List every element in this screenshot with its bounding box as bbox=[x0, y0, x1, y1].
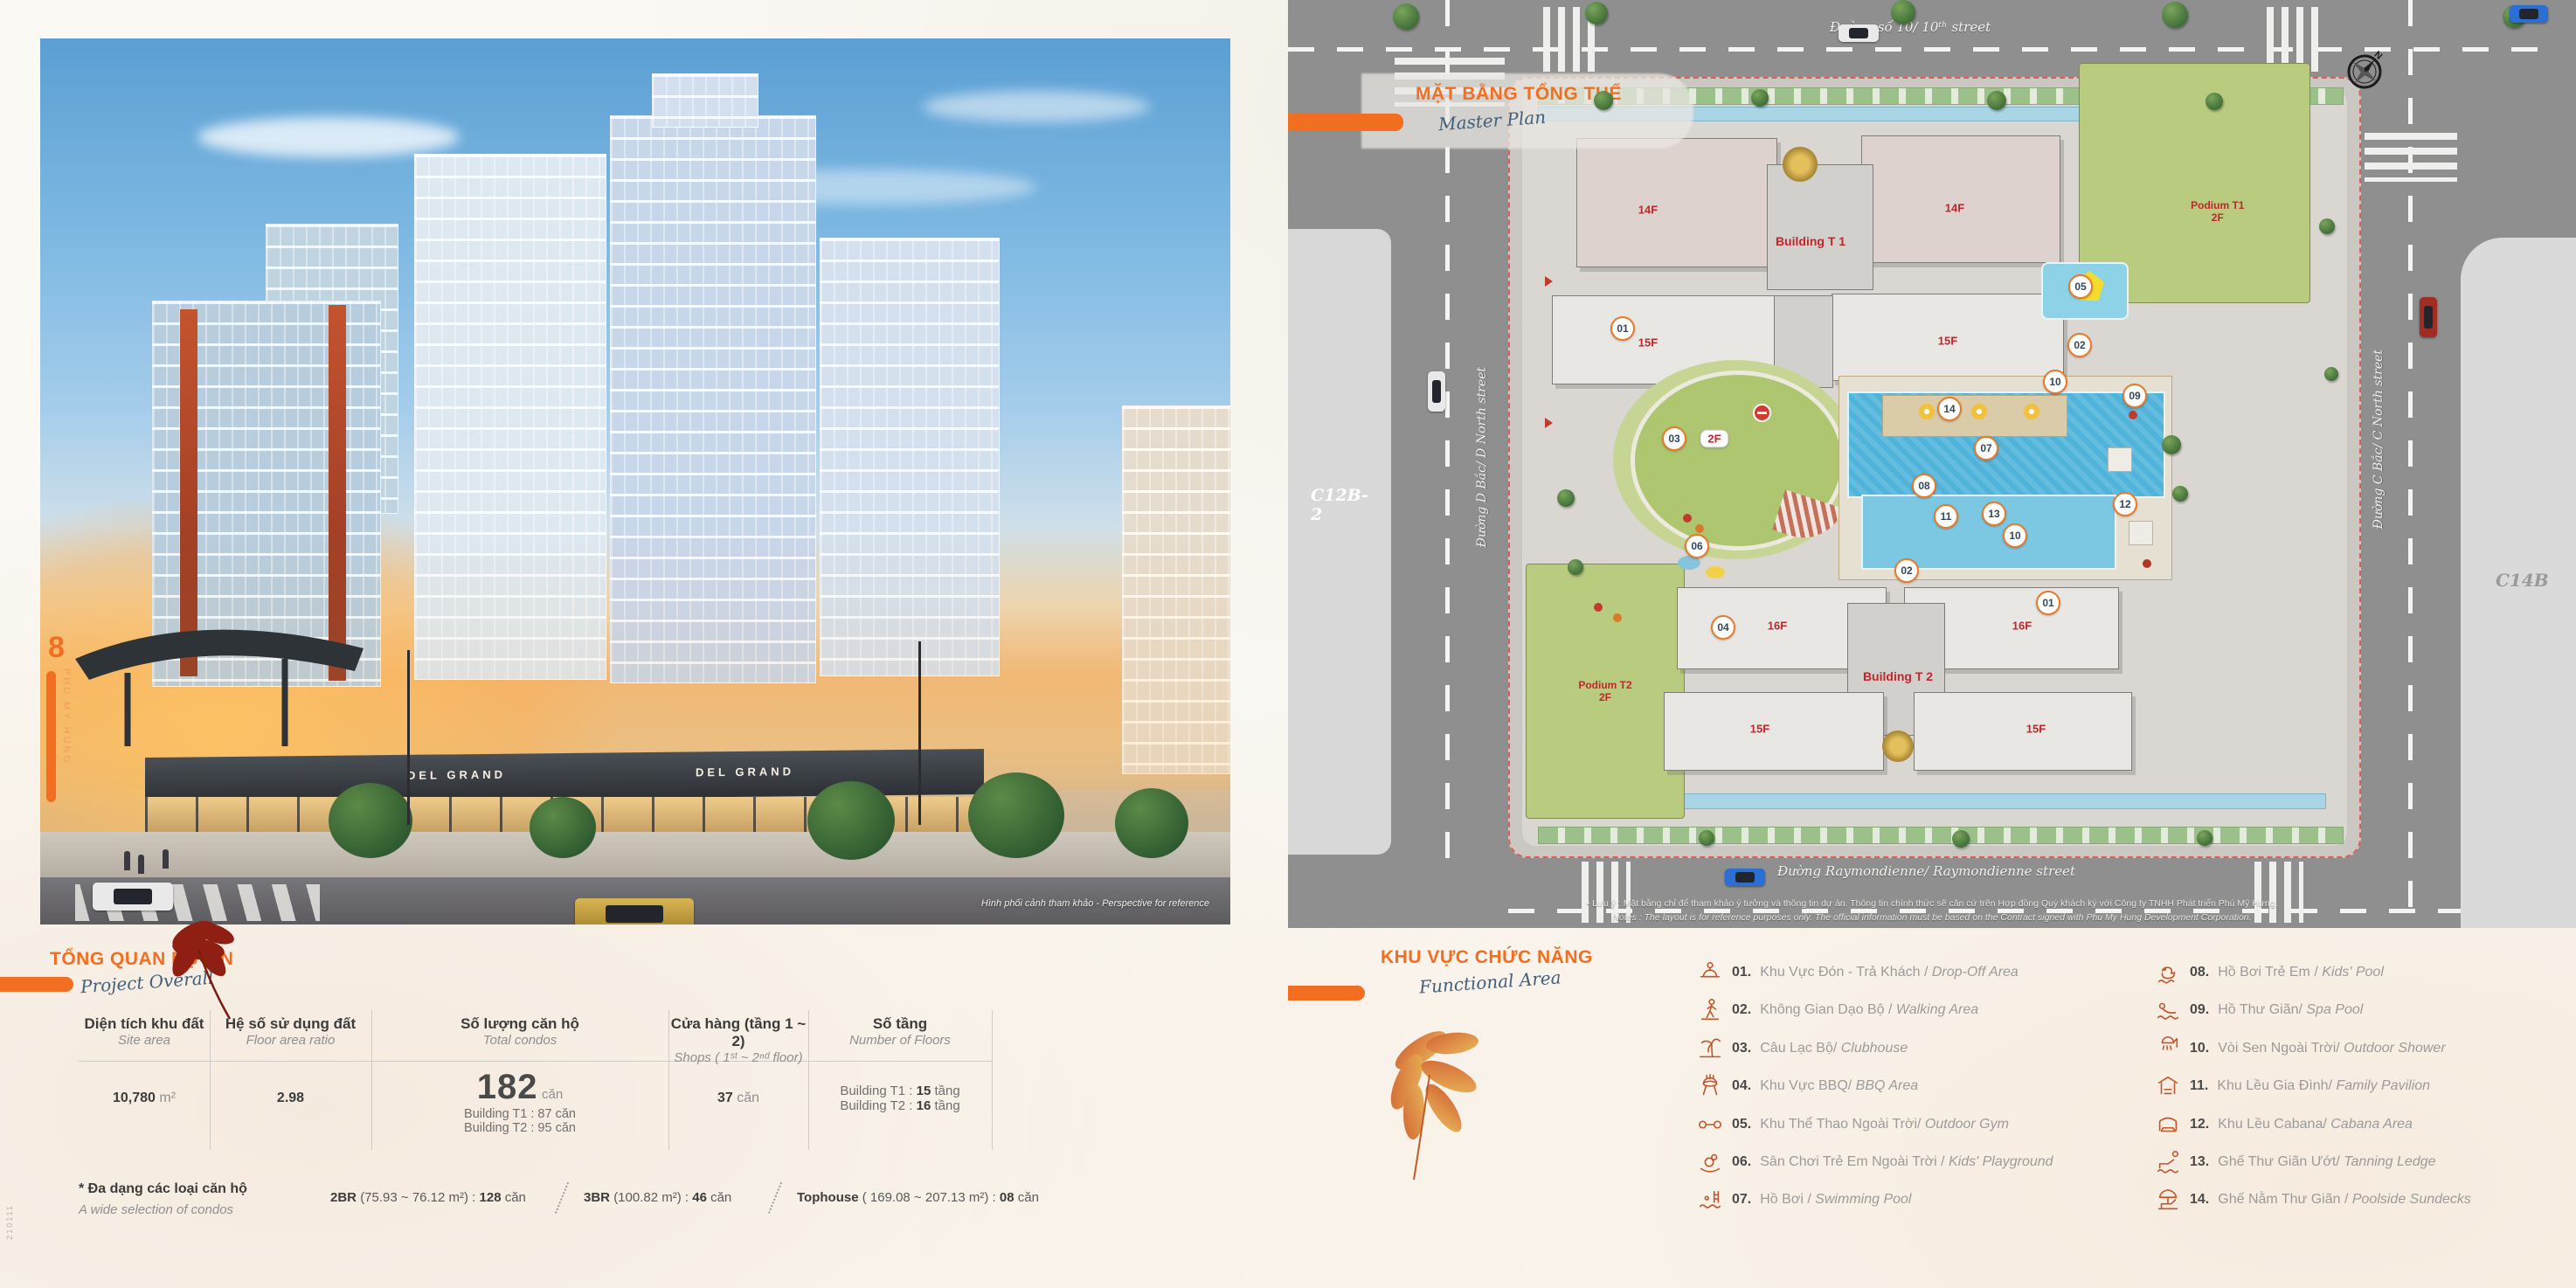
map-marker-13: 13 bbox=[1982, 502, 2006, 526]
map-marker-02: 02 bbox=[1894, 558, 1919, 583]
car-icon bbox=[1839, 24, 1879, 42]
playground-blob bbox=[1706, 566, 1725, 578]
legend-number: 14. bbox=[2190, 1192, 2209, 1208]
floors-cell: Building T1 : 15 tầng Building T2 : 16 t… bbox=[808, 1084, 992, 1113]
t2-wing-15f-right bbox=[1914, 692, 2132, 771]
map-title-pill bbox=[1288, 114, 1403, 131]
map-marker-01: 01 bbox=[1610, 316, 1635, 341]
pedestrian bbox=[138, 855, 144, 874]
brochure-spread: DEL GRAND DEL GRAND Hình phối cảnh tham … bbox=[0, 0, 2576, 1288]
site-area-value: 10,780 m² bbox=[79, 1091, 210, 1106]
col-header: Hệ số sử dụng đấtFloor area ratio bbox=[210, 1015, 371, 1048]
legend-item-02: 02.Không Gian Dạo Bộ / Walking Area bbox=[1697, 995, 1978, 1025]
block-c12b2: C12B-2 bbox=[1288, 229, 1391, 855]
legend-item-13: 13.Ghế Thư Giãn Ướt/ Tanning Ledge bbox=[2155, 1147, 2436, 1177]
spa-pool-icon bbox=[2155, 997, 2181, 1023]
photo-caption: Hình phối cảnh tham khảo - Perspective f… bbox=[981, 898, 1209, 909]
tree-icon bbox=[2197, 830, 2212, 846]
legend-number: 12. bbox=[2190, 1117, 2209, 1132]
floor-count-label: 14F bbox=[1638, 204, 1658, 217]
legend-item-10: 10.Vòi Sen Ngoài Trời/ Outdoor Shower bbox=[2155, 1034, 2446, 1063]
floor-count-label: 16F bbox=[1768, 620, 1787, 633]
entrance-canopy bbox=[66, 598, 381, 755]
legend-subtitle: Functional Area bbox=[1418, 966, 1562, 997]
car-icon bbox=[1725, 869, 1765, 886]
tree-icon bbox=[530, 797, 596, 858]
legend-item-03: 03.Câu Lạc Bộ/ Clubhouse bbox=[1697, 1034, 1908, 1063]
legend-pill bbox=[1288, 986, 1365, 1001]
legend-number: 09. bbox=[2190, 1002, 2209, 1018]
pool-icon bbox=[1697, 1187, 1723, 1213]
floor-count-label: 15F bbox=[2026, 723, 2046, 736]
block-c12b2-label: C12B-2 bbox=[1311, 486, 1368, 524]
map-marker-11: 11 bbox=[1934, 504, 1958, 529]
street-left: Đường D Bắc/ D North street bbox=[1475, 367, 1489, 547]
streetlight bbox=[918, 641, 921, 825]
map-marker-08: 08 bbox=[1912, 474, 1936, 498]
col-header: Số lượng căn hộTotal condos bbox=[371, 1015, 668, 1048]
crosswalk bbox=[2365, 133, 2457, 182]
master-plan-map: C12B-2 C14B Podium T12F Podium T22F bbox=[1288, 0, 2576, 928]
legend-label: Hồ Bơi Trẻ Em / Kids' Pool bbox=[2218, 965, 2384, 980]
car-icon bbox=[93, 883, 173, 911]
map-marker-10: 10 bbox=[2043, 370, 2067, 394]
legend-label: Vòi Sen Ngoài Trời/ Outdoor Shower bbox=[2218, 1041, 2445, 1056]
shrub-icon bbox=[1683, 514, 1692, 523]
brand-vertical: PHU MY HUNG bbox=[61, 668, 72, 765]
t1-wing-14f-left bbox=[1576, 138, 1777, 267]
legend-label: Hồ Thư Giãn/ Spa Pool bbox=[2218, 1002, 2363, 1018]
shrub-icon bbox=[2143, 559, 2151, 568]
tree-icon bbox=[2206, 93, 2223, 110]
delgrand-sign: DEL GRAND bbox=[407, 768, 506, 782]
legend-label: Khu Vực BBQ/ BBQ Area bbox=[1760, 1078, 1918, 1094]
legend-item-05: 05.Khu Thể Thao Ngoài Trời/ Outdoor Gym bbox=[1697, 1110, 2009, 1139]
t1-wing-14f-right bbox=[1861, 135, 2060, 263]
car-icon bbox=[2420, 297, 2437, 337]
map-marker-05: 05 bbox=[2068, 274, 2093, 299]
map-marker-07: 07 bbox=[1974, 436, 1998, 460]
col-header: Diện tích khu đấtSite area bbox=[79, 1015, 210, 1048]
map-note-en: Notes : The layout is for reference purp… bbox=[1320, 912, 2544, 923]
legend-item-07: 07.Hồ Bơi / Swimming Pool bbox=[1697, 1185, 1911, 1215]
cabana bbox=[2108, 447, 2132, 472]
legend-title: KHU VỰC CHỨC NĂNG bbox=[1381, 947, 1593, 968]
condo-type-3br: 3BR (100.82 m²) : 46 căn bbox=[584, 1190, 731, 1205]
shrub-icon bbox=[1594, 603, 1603, 612]
tree-icon bbox=[2162, 435, 2181, 454]
t1-core bbox=[1767, 164, 1873, 290]
tree-icon bbox=[1594, 91, 1613, 110]
legend-item-06: 06.Sân Chơi Trẻ Em Ngoài Trời / Kids' Pl… bbox=[1697, 1147, 2053, 1177]
shower-icon bbox=[2155, 1035, 2181, 1062]
tree-icon bbox=[2324, 367, 2338, 381]
map-title: MẶT BẰNG TỔNG THỂ bbox=[1416, 84, 1622, 105]
overview-pill bbox=[0, 977, 73, 992]
map-marker-12: 12 bbox=[2113, 492, 2137, 516]
tree-icon bbox=[2162, 2, 2188, 28]
legend-label: Hồ Bơi / Swimming Pool bbox=[1760, 1192, 1911, 1208]
condo-type-tophouse: Tophouse ( 169.08 ~ 207.13 m²) : 08 căn bbox=[797, 1190, 1039, 1205]
building-t2-label: Building T 2 bbox=[1863, 669, 1933, 683]
streetlight bbox=[407, 650, 410, 825]
legend-item-09: 09.Hồ Thư Giãn/ Spa Pool bbox=[2155, 995, 2363, 1025]
legend-item-12: 12.Khu Lều Cabana/ Cabana Area bbox=[2155, 1110, 2413, 1139]
legend-label: Câu Lạc Bộ/ Clubhouse bbox=[1760, 1041, 1908, 1056]
legend-number: 07. bbox=[1732, 1192, 1751, 1208]
block-c14b: C14B bbox=[2461, 238, 2576, 928]
page-bar bbox=[46, 671, 56, 802]
legend-number: 10. bbox=[2190, 1041, 2209, 1056]
shrub-icon bbox=[1613, 613, 1622, 622]
crosswalk bbox=[2267, 7, 2323, 72]
condos-cell: 182 căn Building T1 : 87 căn Building T2… bbox=[371, 1068, 668, 1135]
shrub-icon bbox=[1695, 524, 1704, 533]
tree-icon bbox=[2172, 486, 2188, 502]
tree-icon bbox=[1557, 489, 1575, 507]
floor-count-label: 15F bbox=[1638, 336, 1658, 350]
pedestrian bbox=[163, 849, 169, 869]
floor-count-label: 15F bbox=[1750, 723, 1769, 736]
legend-label: Không Gian Dạo Bộ / Walking Area bbox=[1760, 1002, 1978, 1018]
walking-icon bbox=[1697, 997, 1723, 1023]
sundeck-icon bbox=[2155, 1187, 2181, 1213]
tree-icon bbox=[1891, 0, 1915, 24]
legend-number: 02. bbox=[1732, 1002, 1751, 1018]
legend-label: Ghế Nằm Thư Giãn / Poolside Sundecks bbox=[2218, 1192, 2471, 1208]
map-marker-04: 04 bbox=[1711, 615, 1735, 640]
floor-count-label: 16F bbox=[2012, 620, 2032, 633]
tree-icon bbox=[1987, 91, 2006, 110]
tree-icon bbox=[1952, 830, 1970, 848]
legend-label: Khu Lều Gia Đình/ Family Pavilion bbox=[2217, 1078, 2430, 1094]
legend-number: 01. bbox=[1732, 965, 1751, 980]
tree-icon bbox=[807, 781, 895, 860]
compass-icon: N bbox=[2342, 49, 2387, 94]
tree-icon bbox=[2319, 218, 2335, 234]
tanning-icon bbox=[2155, 1149, 2181, 1175]
playground-icon bbox=[1697, 1149, 1723, 1175]
street-right: Đường C Bắc/ C North street bbox=[2372, 350, 2386, 529]
tree-icon bbox=[1585, 2, 1608, 24]
cabana-icon bbox=[2155, 1111, 2181, 1138]
tree-icon bbox=[1393, 3, 1419, 30]
clubhouse-icon bbox=[1697, 1035, 1723, 1062]
tower-crown bbox=[652, 73, 758, 128]
tree-icon bbox=[329, 783, 412, 858]
sports-car-icon bbox=[575, 898, 694, 924]
red-leaf-icon bbox=[153, 911, 249, 1024]
gym-icon bbox=[1697, 1111, 1723, 1138]
kids-pool-icon bbox=[2155, 959, 2181, 986]
legend-label: Khu Lều Cabana/ Cabana Area bbox=[2218, 1117, 2413, 1132]
legend-item-08: 08.Hồ Bơi Trẻ Em / Kids' Pool bbox=[2155, 958, 2384, 987]
far-value: 2.98 bbox=[210, 1091, 371, 1106]
map-marker-09: 09 bbox=[2122, 384, 2147, 408]
legend-number: 05. bbox=[1732, 1117, 1751, 1132]
tree-icon bbox=[1115, 788, 1188, 858]
legend-label: Sân Chơi Trẻ Em Ngoài Trời / Kids' Playg… bbox=[1760, 1154, 2053, 1170]
car-icon bbox=[1428, 371, 1445, 412]
legend-number: 06. bbox=[1732, 1154, 1751, 1170]
podium-t2: Podium T22F bbox=[1526, 564, 1685, 819]
delgrand-sign: DEL GRAND bbox=[696, 765, 794, 779]
bbq-icon bbox=[1697, 1073, 1723, 1099]
tree-icon bbox=[968, 772, 1064, 858]
legend-number: 03. bbox=[1732, 1041, 1751, 1056]
legend-label: Khu Thể Thao Ngoài Trời/ Outdoor Gym bbox=[1760, 1117, 2009, 1132]
hedge bbox=[1538, 827, 2344, 844]
street-bottom: Đường Raymondienne/ Raymondienne street bbox=[1777, 863, 2075, 879]
umbrella-icon bbox=[2024, 404, 2039, 419]
block-c14b-label: C14B bbox=[2496, 570, 2549, 591]
map-marker-02: 02 bbox=[2067, 333, 2092, 357]
separator bbox=[768, 1182, 783, 1214]
umbrella-icon bbox=[1971, 404, 1987, 419]
legend-label: Ghế Thư Giãn Ướt/ Tanning Ledge bbox=[2218, 1154, 2435, 1170]
map-marker-14: 14 bbox=[1937, 397, 1962, 421]
tree-icon bbox=[1699, 830, 1714, 846]
doc-code: 210111 bbox=[5, 1204, 14, 1240]
direction-arrow bbox=[1545, 418, 1553, 428]
map-marker-06: 06 bbox=[1685, 534, 1709, 558]
tree-icon bbox=[1568, 559, 1583, 575]
legend-item-04: 04.Khu Vực BBQ/ BBQ Area bbox=[1697, 1071, 1918, 1101]
tree-icon bbox=[1751, 89, 1769, 107]
no-entry-sign bbox=[1753, 404, 1771, 422]
legend-number: 11. bbox=[2190, 1078, 2208, 1094]
cabana bbox=[2129, 521, 2153, 545]
condo-type-2br: 2BR (75.93 ~ 76.12 m²) : 128 căn bbox=[330, 1190, 526, 1205]
umbrella-icon bbox=[1919, 404, 1935, 419]
shops-value: 37 căn bbox=[668, 1091, 808, 1106]
map-marker-01: 01 bbox=[2036, 591, 2060, 615]
page-number: 8 bbox=[48, 631, 65, 665]
bellman-icon bbox=[1697, 959, 1723, 986]
legend-item-11: 11.Khu Lều Gia Đình/ Family Pavilion bbox=[2155, 1071, 2430, 1101]
separator bbox=[555, 1182, 570, 1214]
map-marker-03: 03 bbox=[1662, 426, 1686, 451]
cloud bbox=[197, 117, 460, 157]
floor-count-label: 14F bbox=[1945, 202, 1964, 215]
legend-number: 08. bbox=[2190, 965, 2209, 980]
legend-item-01: 01.Khu Vực Đón - Trả Khách / Drop-Off Ar… bbox=[1697, 958, 2019, 987]
car-icon bbox=[2510, 5, 2548, 23]
legend-number: 13. bbox=[2190, 1154, 2209, 1170]
variety-note-vi: * Đa dạng các loại căn hộ bbox=[79, 1181, 247, 1197]
map-note-vi: • Lưu ý : Mặt bằng chỉ để tham khảo ý tư… bbox=[1320, 898, 2544, 909]
floor-count-label: 15F bbox=[1938, 335, 1957, 348]
perspective-photo: DEL GRAND DEL GRAND Hình phối cảnh tham … bbox=[40, 38, 1230, 924]
fountain bbox=[1882, 731, 1914, 762]
shrub-icon bbox=[2129, 411, 2137, 419]
map-marker-10: 10 bbox=[2003, 523, 2027, 548]
clubhouse-level-badge: 2F bbox=[1700, 430, 1728, 448]
legend-label: Khu Vực Đón - Trả Khách / Drop-Off Area bbox=[1760, 965, 2019, 980]
pavilion-icon bbox=[2155, 1073, 2181, 1099]
legend-item-14: 14.Ghế Nằm Thư Giãn / Poolside Sundecks bbox=[2155, 1185, 2471, 1215]
direction-arrow bbox=[1545, 276, 1553, 287]
col-header: Số tầngNumber of Floors bbox=[808, 1015, 992, 1048]
cloud bbox=[923, 91, 1150, 122]
pedestrian bbox=[124, 851, 130, 870]
variety-note-en: A wide selection of condos bbox=[79, 1202, 233, 1217]
orange-leaf-icon bbox=[1368, 1014, 1534, 1188]
fountain bbox=[1783, 147, 1818, 182]
legend-number: 04. bbox=[1732, 1078, 1751, 1094]
t2-wing-15f-left bbox=[1664, 692, 1884, 771]
col-header: Cửa hàng (tầng 1 ~ 2)Shops ( 1ˢᵗ ~ 2ⁿᵈ f… bbox=[668, 1015, 808, 1065]
building-t1-label: Building T 1 bbox=[1776, 234, 1845, 248]
